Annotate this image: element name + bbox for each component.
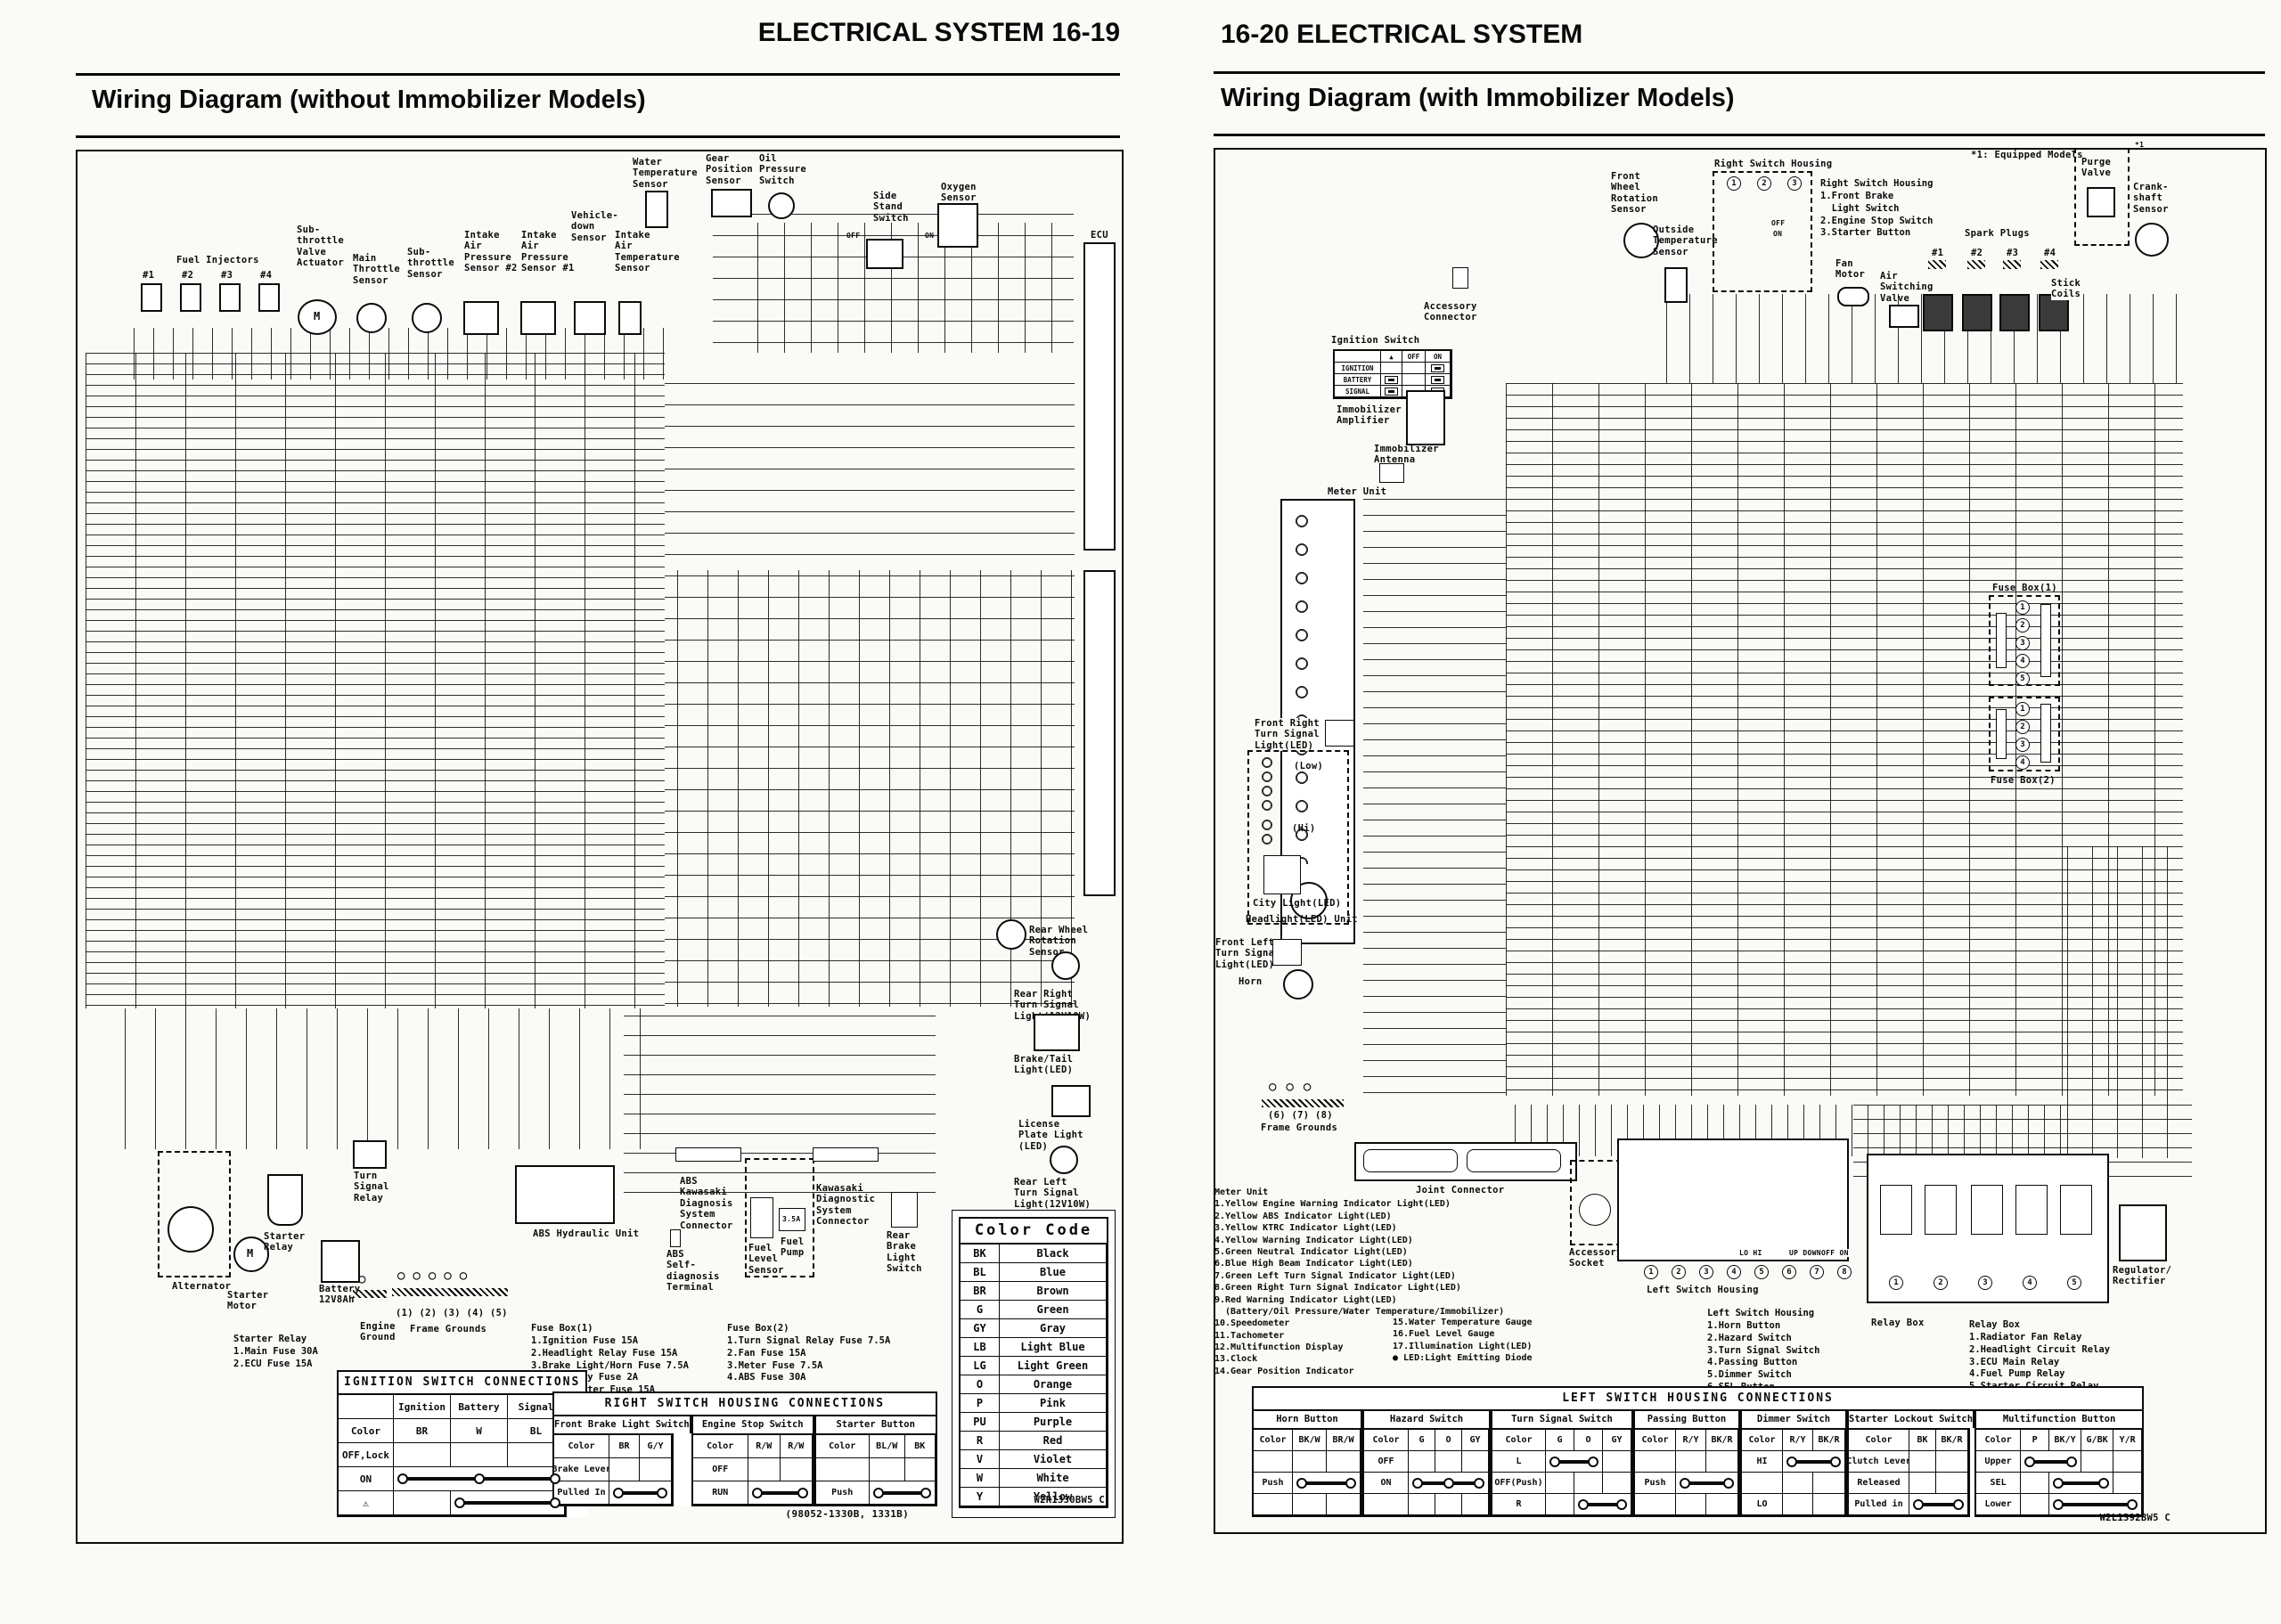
section-grid: ColorR/YBK/RHILO — [1740, 1428, 1847, 1517]
label-fuel-injectors: Fuel Injectors — [176, 255, 259, 265]
connection-bar — [1909, 1494, 1967, 1514]
high-beam-leds — [1256, 818, 1278, 848]
table-cell: Color — [339, 1419, 394, 1443]
table-cell — [1327, 1494, 1361, 1515]
relay-box-numbers: 12345 — [1889, 1276, 2081, 1290]
label-outside-temp-sensor: Outside Temperature Sensor — [1653, 224, 1718, 257]
table-cell — [870, 1458, 905, 1481]
list-line: Meter Unit — [1214, 1187, 1504, 1198]
table-cell — [2021, 1473, 2049, 1494]
frame-ground-symbols: ○○○○○ — [397, 1269, 475, 1284]
section-grid: ColorBRG/YBrake LeverPulled In — [552, 1433, 674, 1506]
table-cell — [1293, 1451, 1327, 1473]
connection-bar — [2021, 1451, 2081, 1472]
table-cell — [905, 1458, 936, 1481]
wire-bundle — [125, 1008, 642, 1149]
table-cell — [2021, 1451, 2081, 1473]
relay-symbol — [1880, 1185, 1912, 1235]
turn-signal-symbol — [1325, 720, 1354, 747]
table-section: Front Brake Light SwitchColorBRG/YBrake … — [552, 1415, 691, 1506]
connection-bar — [1293, 1473, 1360, 1493]
section-title: Starter Lockout Switch — [1847, 1409, 1974, 1428]
diagram-code-right: W2L1392BW5 C — [2032, 1513, 2171, 1523]
table-cell: Orange — [1000, 1375, 1107, 1394]
table-cell: Color — [816, 1435, 870, 1458]
right-switch-housing-numbers: 123 — [1727, 176, 1802, 191]
connector-plug-symbol — [1385, 388, 1398, 396]
left-switch-sections: Horn ButtonColorBK/WBR/WPushHazard Switc… — [1252, 1409, 2144, 1517]
table-cell: Color — [1254, 1430, 1293, 1451]
table-cell — [1462, 1451, 1489, 1473]
circled-number: 8 — [1837, 1265, 1852, 1279]
table-cell — [816, 1458, 870, 1481]
table-cell: BR — [394, 1419, 451, 1443]
label-spark-plugs: Spark Plugs — [1965, 228, 2030, 239]
table-cell: Brake Lever — [554, 1458, 609, 1481]
table-cell — [1546, 1494, 1574, 1515]
label-ignition-switch: Ignition Switch — [1331, 335, 1419, 346]
connection-terminal — [474, 1473, 485, 1484]
label-alternator: Alternator — [172, 1281, 231, 1292]
ground-hatch — [392, 1288, 508, 1296]
section-grid: ColorBL/WBKPush — [814, 1433, 937, 1506]
turn-signal-symbol — [1272, 939, 1302, 966]
label-side-stand-off: OFF — [846, 232, 860, 240]
table-cell: Upper — [1976, 1451, 2021, 1473]
connector-plug-symbol — [1431, 376, 1444, 384]
label-side-stand-switch: Side Stand Switch — [873, 191, 909, 224]
label-immobilizer-antenna: Immobilizer Antenna — [1374, 444, 1439, 466]
connection-bar — [1676, 1473, 1737, 1493]
label-meter-unit: Meter Unit — [1328, 486, 1386, 497]
diagram-code-left: W2R1330BW5 C — [980, 1495, 1105, 1506]
connection-terminal — [1474, 1478, 1484, 1489]
table-cell — [1381, 374, 1402, 386]
table-cell: Color — [554, 1435, 609, 1458]
label-city-light: City Light(LED) — [1253, 898, 1341, 909]
label-lo-hi: LO HI — [1739, 1249, 1762, 1257]
table-cell — [870, 1481, 936, 1505]
fan-motor-symbol — [1837, 287, 1869, 306]
connection-bar — [1574, 1494, 1631, 1514]
connector-plug-symbol — [1431, 364, 1444, 372]
connection-terminal — [1830, 1457, 1841, 1467]
circled-number: 3 — [2015, 738, 2030, 752]
stick-coil-symbol — [1923, 294, 1953, 331]
diagnosis-connector-symbol — [675, 1147, 741, 1162]
list-line: Fuse Box(2) — [727, 1323, 890, 1335]
circled-number: 5 — [1754, 1265, 1769, 1279]
table-cell — [1381, 363, 1402, 374]
stick-coil-symbol — [1999, 294, 2030, 331]
table-cell — [1435, 1494, 1462, 1515]
table-cell: Battery — [451, 1395, 508, 1419]
table-cell — [1381, 386, 1402, 397]
table-cell: BK/W — [1293, 1430, 1327, 1451]
switch-symbol — [866, 239, 903, 269]
label-fuel-level-sensor: Fuel Level Sensor — [748, 1243, 784, 1276]
ignition-connections-table: IGNITION SWITCH CONNECTIONS IgnitionBatt… — [337, 1370, 587, 1517]
table-cell — [1813, 1494, 1845, 1515]
right-switch-sections: Front Brake Light SwitchColorBRG/YBrake … — [552, 1415, 937, 1506]
label-rsh-off: OFF — [1771, 219, 1785, 227]
sensor-symbol — [574, 301, 606, 335]
section-title: Multifunction Button — [1974, 1409, 2144, 1428]
table-cell: G — [961, 1301, 1000, 1319]
valve-symbol — [2087, 187, 2115, 217]
table-section: Starter Lockout SwitchColorBKBK/RClutch … — [1847, 1409, 1974, 1517]
table-cell: O — [1574, 1430, 1603, 1451]
table-cell — [1706, 1451, 1738, 1473]
wire-bundle — [757, 223, 1074, 353]
list-line: 1.Radiator Fan Relay — [1969, 1332, 2110, 1344]
diagnostic-connector-symbol — [813, 1147, 879, 1162]
connection-terminal — [797, 1488, 808, 1498]
fuel-injector-symbol — [258, 283, 280, 312]
label-accessory-socket: Accessory Socket — [1569, 1247, 1623, 1269]
label-immobilizer-amplifier: Immobilizer Amplifier — [1337, 404, 1402, 427]
table-cell — [1603, 1473, 1631, 1494]
right-switch-connections-title: RIGHT SWITCH HOUSING CONNECTIONS — [552, 1391, 937, 1415]
table-cell — [609, 1481, 672, 1505]
circled-number: 4 — [2015, 654, 2030, 668]
table-cell: Purple — [1000, 1413, 1107, 1432]
connection-bar — [394, 1467, 564, 1490]
table-cell — [1254, 1494, 1293, 1515]
circled-number: 7 — [1810, 1265, 1824, 1279]
table-cell — [1546, 1451, 1603, 1473]
label-sub-throttle-sensor: Sub- throttle Sensor — [407, 247, 454, 280]
table-cell — [1293, 1473, 1361, 1494]
table-cell: Released — [1849, 1473, 1909, 1494]
relay-symbol — [2060, 1185, 2092, 1235]
list-line: 3.ECU Main Relay — [1969, 1357, 2110, 1369]
section-grid: ColorPBK/YG/BKY/RUpperSELLower — [1974, 1428, 2144, 1517]
label-fuel-pump: Fuel Pump — [781, 1236, 805, 1259]
connection-terminal — [1549, 1457, 1560, 1467]
accessory-socket-symbol — [1579, 1194, 1611, 1226]
connection-terminal — [2127, 1499, 2138, 1510]
table-cell: BK/R — [1706, 1430, 1738, 1451]
joint-connector-half — [1363, 1149, 1458, 1172]
list-line: 1.Front Brake — [1820, 191, 1933, 203]
left-switch-housing-numbers: 12345678 — [1644, 1265, 1852, 1279]
table-cell: G — [1546, 1430, 1574, 1451]
table-cell — [1603, 1451, 1631, 1473]
list-line: 7.Green Left Turn Signal Indicator Light… — [1214, 1270, 1504, 1282]
connection-terminal — [1680, 1478, 1690, 1489]
table-cell — [1742, 1473, 1783, 1494]
connection-terminal — [2024, 1457, 2035, 1467]
circled-number: 4 — [1727, 1265, 1741, 1279]
connection-bar — [1783, 1451, 1844, 1472]
table-cell: Color — [693, 1435, 748, 1458]
page-header-left: ELECTRICAL SYSTEM 16-19 — [535, 18, 1120, 48]
immobilizer-amplifier-symbol — [1406, 390, 1445, 445]
meter-unit-list-col2: 15.Water Temperature Gauge16.Fuel Level … — [1393, 1317, 1533, 1365]
table-cell: Clutch Lever — [1849, 1451, 1909, 1473]
label-left-switch-housing: Left Switch Housing — [1647, 1285, 1759, 1295]
table-cell: R — [961, 1432, 1000, 1450]
label-intake-air-temp-sensor: Intake Air Temperature Sensor — [615, 230, 680, 274]
table-cell — [1936, 1473, 1968, 1494]
label-frame-grounds: Frame Grounds — [1261, 1122, 1337, 1133]
list-line: 2.Hazard Switch — [1707, 1333, 1843, 1345]
table-cell: Push — [1635, 1473, 1676, 1494]
list-line: 14.Gear Position Indicator — [1214, 1366, 1504, 1377]
list-line: 2.Headlight Relay Fuse 15A — [531, 1348, 689, 1360]
connection-terminal — [1345, 1478, 1356, 1489]
table-cell: Push — [816, 1481, 870, 1505]
label-oxygen-sensor: Oxygen Sensor — [941, 182, 977, 204]
table-cell: Ignition — [394, 1395, 451, 1419]
fuel-level-sensor-symbol — [750, 1197, 773, 1238]
connection-terminal — [454, 1498, 465, 1508]
manual-spread: ELECTRICAL SYSTEM 16-19 Wiring Diagram (… — [0, 0, 2281, 1624]
left-switch-connections-table: LEFT SWITCH HOUSING CONNECTIONS Horn But… — [1252, 1386, 2144, 1517]
table-cell: G — [1409, 1430, 1435, 1451]
fuse-connector — [1996, 709, 2007, 759]
table-cell — [1783, 1451, 1845, 1473]
table-cell — [640, 1458, 672, 1481]
table-cell: GY — [961, 1319, 1000, 1338]
table-cell — [1813, 1473, 1845, 1494]
table-cell: BK/R — [1936, 1430, 1968, 1451]
table-cell: OFF — [1364, 1451, 1409, 1473]
table-cell: ⚠ — [339, 1491, 394, 1515]
fuse-connector — [2040, 604, 2051, 677]
connection-terminal — [920, 1488, 931, 1498]
list-line: 1.Main Fuse 30A — [233, 1346, 318, 1359]
table-section: Starter ButtonColorBL/WBKPush — [814, 1415, 937, 1506]
list-line: 9.Red Warning Indicator Light(LED) — [1214, 1294, 1504, 1306]
table-cell — [1706, 1494, 1738, 1515]
right-switch-connections-table: RIGHT SWITCH HOUSING CONNECTIONS Front B… — [552, 1391, 937, 1506]
label-spark-plug-4: #4 — [2044, 248, 2056, 258]
table-cell — [1364, 1494, 1409, 1515]
connector-strip — [1083, 570, 1116, 896]
table-cell: G/BK — [2081, 1430, 2113, 1451]
table-cell: W — [451, 1419, 508, 1443]
section-title: Dimmer Switch — [1740, 1409, 1847, 1428]
table-cell: RUN — [693, 1481, 748, 1505]
rotation-sensor-symbol — [996, 919, 1026, 950]
connection-terminal — [550, 1498, 560, 1508]
label-frame-ground-numbers: (1) (2) (3) (4) (5) — [396, 1308, 508, 1318]
label-starter-motor: Starter Motor — [227, 1290, 268, 1312]
list-line: 8.Green Right Turn Signal Indicator Ligh… — [1214, 1282, 1504, 1293]
table-cell — [2113, 1451, 2142, 1473]
battery-symbol — [321, 1240, 360, 1283]
circled-number: 4 — [2023, 1276, 2037, 1290]
label-injector-3: #3 — [221, 270, 233, 281]
table-cell — [1426, 374, 1451, 386]
right-switch-part-number: (98052-1330B, 1331B) — [747, 1509, 909, 1521]
label-front-left-turn-signal: Front Left Turn Signal Light(LED) — [1215, 937, 1280, 970]
table-cell: PU — [961, 1413, 1000, 1432]
ignition-connections-grid: IgnitionBatterySignalColorBRWBLOFF,LockO… — [337, 1393, 567, 1517]
label-gear-position-sensor: Gear Position Sensor — [706, 153, 753, 186]
table-cell: Pulled In — [554, 1481, 609, 1505]
fuse-box-2-numbers: 1234 — [2015, 702, 2030, 770]
sensor-symbol — [937, 203, 978, 248]
table-cell: L — [1492, 1451, 1546, 1473]
title-rule — [76, 135, 1120, 138]
sensor-symbol — [356, 303, 387, 333]
sensor-symbol — [412, 303, 442, 333]
table-cell: BK — [961, 1245, 1000, 1263]
circled-number: 3 — [2015, 636, 2030, 650]
list-line: 4.Fuel Pump Relay — [1969, 1368, 2110, 1381]
label-ecu: ECU — [1091, 230, 1108, 241]
table-cell — [1783, 1473, 1813, 1494]
section-grid: ColorBKBK/RClutch LeverReleasedPulled in — [1847, 1428, 1970, 1517]
table-cell: BL — [961, 1263, 1000, 1282]
table-cell — [1909, 1451, 1936, 1473]
table-cell: SEL — [1976, 1473, 2021, 1494]
color-code-title: Color Code — [959, 1217, 1108, 1243]
table-cell: BK — [1909, 1430, 1936, 1451]
label-abs-self-diagnosis-terminal: ABS Self- diagnosis Terminal — [666, 1249, 720, 1293]
section-title: Turn Signal Switch — [1491, 1409, 1633, 1428]
connection-terminal — [397, 1473, 408, 1484]
turn-signal-relay-symbol — [353, 1140, 387, 1169]
table-cell — [1783, 1494, 1813, 1515]
table-cell: Y/R — [2113, 1430, 2142, 1451]
table-cell — [1574, 1473, 1603, 1494]
city-light-symbol — [1263, 855, 1301, 894]
ecu-connector — [1083, 242, 1116, 551]
section-grid: ColorGOGYOFFON — [1362, 1428, 1491, 1517]
list-line: 4.Passing Button — [1707, 1357, 1843, 1369]
table-cell — [1402, 363, 1426, 374]
sensor-symbol — [1664, 267, 1688, 303]
label-turn-signal-relay: Turn Signal Relay — [354, 1171, 389, 1204]
table-cell: BK/R — [1813, 1430, 1845, 1451]
label-frame-ground-numbers: (6) (7) (8) — [1268, 1110, 1333, 1121]
joint-connector-half — [1467, 1149, 1561, 1172]
label-sub-throttle-valve-actuator: Sub- throttle Valve Actuator — [297, 224, 344, 269]
label-rear-brake-light-switch: Rear Brake Light Switch — [887, 1230, 922, 1275]
fuse-box2-list: Fuse Box(2)1.Turn Signal Relay Fuse 7.5A… — [727, 1323, 890, 1384]
circled-number: 1 — [1889, 1276, 1903, 1290]
table-cell — [394, 1491, 451, 1515]
low-beam-leds — [1256, 755, 1278, 812]
list-line: Left Switch Housing — [1707, 1308, 1843, 1320]
label-abs-hydraulic-unit: ABS Hydraulic Unit — [533, 1228, 639, 1239]
table-cell — [1909, 1494, 1968, 1515]
table-cell: Push — [1254, 1473, 1293, 1494]
connection-bar — [451, 1491, 564, 1514]
table-cell: Color — [1492, 1430, 1546, 1451]
table-cell: O — [1435, 1430, 1462, 1451]
valve-symbol — [1889, 305, 1919, 328]
section-title: Front Brake Light Switch — [552, 1415, 691, 1433]
circled-number: 1 — [2015, 600, 2030, 615]
header-rule — [76, 73, 1120, 76]
table-cell — [1254, 1451, 1293, 1473]
label-rear-left-turn-signal: Rear Left Turn Signal Light(12V10W) — [1014, 1177, 1091, 1210]
connection-terminal — [2053, 1478, 2064, 1489]
list-line: Fuse Box(1) — [531, 1323, 689, 1335]
label-stick-coils: Stick Coils — [2051, 278, 2081, 300]
list-line: 1.Horn Button — [1707, 1320, 1843, 1333]
list-line: 3.Yellow KTRC Indicator Light(LED) — [1214, 1222, 1504, 1234]
circled-number: 2 — [2015, 618, 2030, 632]
label-equipped-models-note: *1: Equipped Models — [1971, 150, 2083, 160]
table-cell: OFF — [1402, 351, 1426, 363]
connection-terminal — [2066, 1457, 2077, 1467]
table-cell: Light Blue — [1000, 1338, 1107, 1357]
table-cell — [1909, 1473, 1936, 1494]
connection-terminal — [2098, 1478, 2109, 1489]
table-cell: SIGNAL — [1335, 386, 1381, 397]
table-cell: BR — [961, 1282, 1000, 1301]
table-cell: Red — [1000, 1432, 1107, 1450]
page-header-right: 16-20 ELECTRICAL SYSTEM — [1221, 20, 1582, 50]
connection-terminal — [613, 1488, 624, 1498]
label-engine-ground: Engine Ground — [360, 1321, 396, 1343]
circled-number: 4 — [2015, 755, 2030, 770]
relay-box-list: Relay Box1.Radiator Fan Relay2.Headlight… — [1969, 1319, 2110, 1393]
table-cell — [2113, 1473, 2142, 1494]
table-cell — [1402, 374, 1426, 386]
label-high-beam: (Hi) — [1292, 823, 1316, 834]
table-cell — [1936, 1451, 1968, 1473]
table-cell: LG — [961, 1357, 1000, 1375]
frame-ground-symbols: ○○○ — [1269, 1080, 1320, 1095]
table-cell: LO — [1742, 1494, 1783, 1515]
label-low-beam: (Low) — [1294, 761, 1323, 771]
list-line: 4.Yellow Warning Indicator Light(LED) — [1214, 1235, 1504, 1246]
circled-number: 2 — [2015, 720, 2030, 734]
list-line: 1.Turn Signal Relay Fuse 7.5A — [727, 1335, 890, 1348]
accessory-connector-symbol — [1452, 267, 1468, 289]
wire-bundle — [134, 328, 668, 379]
label-abs-kds-connector: ABS Kawasaki Diagnosis System Connector — [680, 1176, 733, 1231]
label-regulator-rectifier: Regulator/ Rectifier — [2113, 1265, 2171, 1287]
label-starter-relay: Starter Relay — [264, 1231, 305, 1253]
list-line: 6.Blue High Beam Indicator Light(LED) — [1214, 1258, 1504, 1269]
table-cell: ON — [339, 1467, 394, 1491]
table-cell: OFF(Push) — [1492, 1473, 1546, 1494]
circled-number: 5 — [2067, 1276, 2081, 1290]
section-title: Hazard Switch — [1362, 1409, 1491, 1428]
table-cell — [1409, 1451, 1435, 1473]
circled-number: 1 — [2015, 702, 2030, 716]
table-cell: R/Y — [1783, 1430, 1813, 1451]
list-line: 3.Turn Signal Switch — [1707, 1345, 1843, 1358]
section-title: Passing Button — [1633, 1409, 1740, 1428]
left-switch-connections-title: LEFT SWITCH HOUSING CONNECTIONS — [1252, 1386, 2144, 1409]
table-cell — [1635, 1451, 1676, 1473]
list-line: 5.Dimmer Switch — [1707, 1369, 1843, 1382]
table-cell: Green — [1000, 1301, 1107, 1319]
table-cell — [1335, 351, 1381, 363]
circled-number: 1 — [1644, 1265, 1658, 1279]
list-line: 16.Fuel Level Gauge — [1393, 1328, 1533, 1340]
table-cell: W — [961, 1469, 1000, 1488]
table-cell: Violet — [1000, 1450, 1107, 1469]
label-intake-air-pressure-1: Intake Air Pressure Sensor #1 — [521, 230, 575, 274]
table-section: Dimmer SwitchColorR/YBK/RHILO — [1740, 1409, 1847, 1517]
table-cell — [781, 1458, 813, 1481]
table-cell: OFF — [693, 1458, 748, 1481]
table-cell: R/W — [748, 1435, 781, 1458]
section-grid: ColorR/WR/WOFFRUN — [691, 1433, 814, 1506]
table-cell: White — [1000, 1469, 1107, 1488]
abs-hydraulic-unit-symbol — [515, 1165, 615, 1224]
